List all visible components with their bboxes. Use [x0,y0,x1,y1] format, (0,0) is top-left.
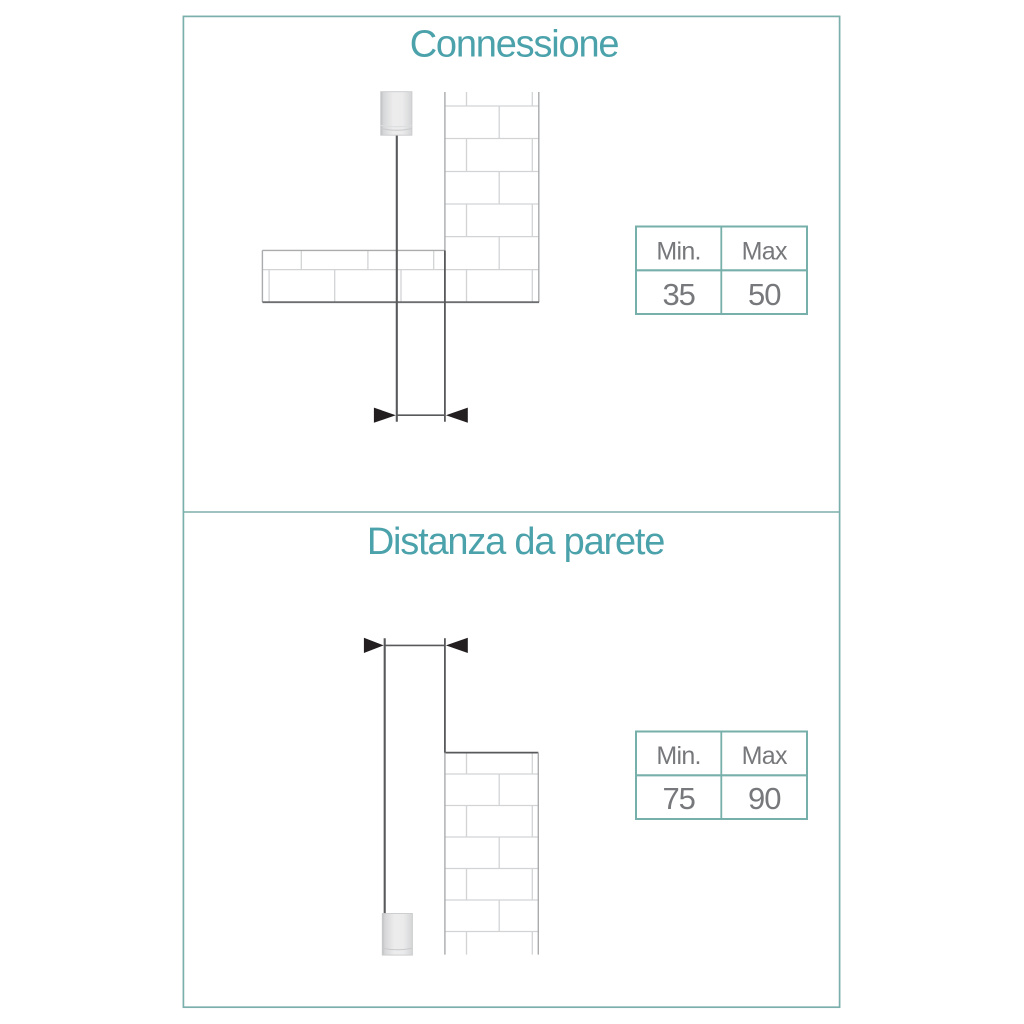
svg-text:Min.: Min. [656,237,700,265]
svg-text:Min.: Min. [656,742,700,770]
svg-text:50: 50 [748,277,781,312]
svg-text:35: 35 [662,277,694,312]
svg-text:Max: Max [742,237,788,265]
svg-text:75: 75 [662,781,694,816]
svg-text:Connessione: Connessione [410,24,619,66]
svg-text:Distanza da parete: Distanza da parete [367,521,664,563]
svg-text:90: 90 [748,781,781,816]
svg-text:Max: Max [742,742,788,770]
